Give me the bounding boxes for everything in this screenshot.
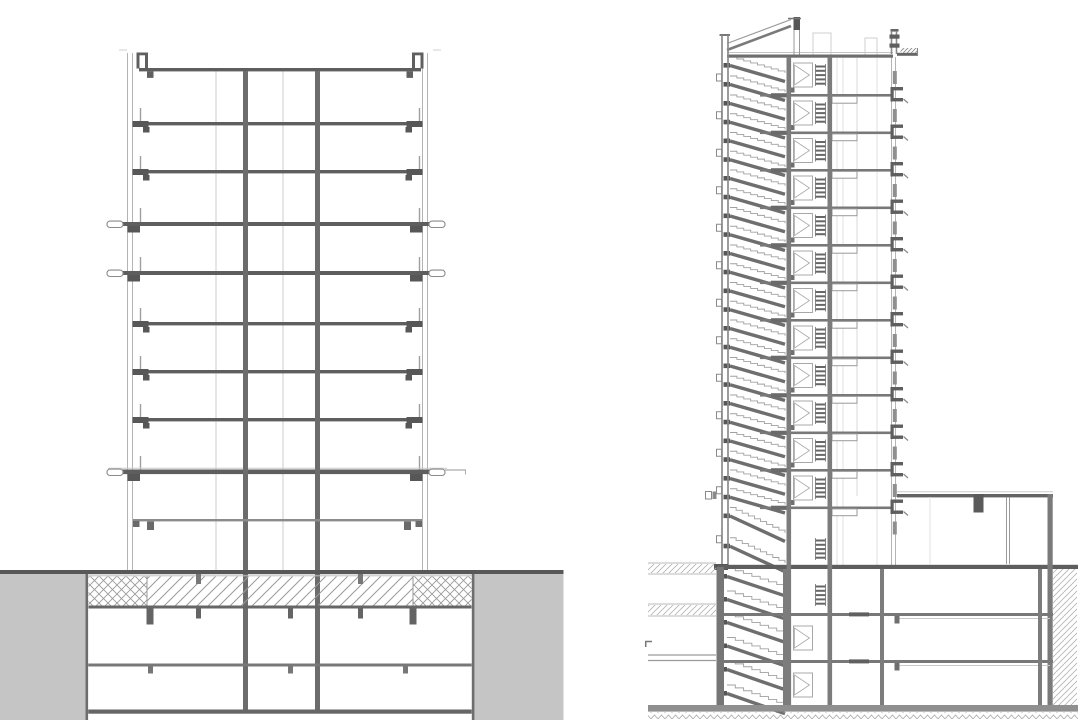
balcony-bracket: [891, 436, 904, 439]
architectural-sections-canvas: [0, 0, 1080, 720]
shaft-wall-dot: [791, 463, 795, 468]
ladder-rung: [816, 74, 826, 76]
slab-drip-tip: [429, 221, 445, 227]
bracket-tick: [904, 437, 909, 441]
ladder-rung: [816, 196, 826, 198]
corridor-beam: [832, 359, 857, 366]
parapet-bracket: [890, 44, 900, 48]
railing-dash: [893, 372, 897, 385]
ladder-rung: [816, 112, 826, 114]
parapet-bracket: [890, 35, 900, 39]
hatch-band-top: [89, 575, 472, 576]
basement-wall: [86, 574, 89, 720]
roof-slab: [139, 68, 421, 71]
ladder-rung: [816, 540, 826, 542]
slab-end-bracket: [407, 417, 423, 423]
bracket-tick: [904, 324, 909, 328]
railing-dash: [893, 109, 897, 122]
slab-step: [128, 474, 141, 481]
ladder-rung: [816, 179, 826, 181]
balcony-bracket: [891, 286, 904, 289]
ladder-rung: [816, 229, 826, 231]
slab-end-bracket: [143, 423, 150, 429]
podium-stub: [147, 522, 154, 531]
stair-landing-tick: [724, 214, 731, 219]
stair-landing-tick: [724, 176, 731, 181]
slab-end-bracket: [143, 175, 150, 181]
ladder-rung: [816, 370, 826, 372]
shaft-wall-dot: [791, 500, 795, 505]
stair-landing-tick: [724, 139, 731, 144]
ladder-rung: [816, 548, 826, 550]
ground-mass: [0, 574, 86, 720]
balcony-bracket: [891, 462, 904, 465]
wall-vent-tick: [717, 412, 722, 419]
wall-vent-tick: [717, 262, 722, 269]
slab-end-bracket: [406, 127, 413, 133]
floor-slab: [139, 322, 421, 325]
shaft-wall-dot: [791, 125, 795, 130]
slab-end-bracket: [406, 327, 413, 333]
bracket-tick: [904, 399, 909, 403]
slab-drip-tip: [429, 270, 445, 276]
slab-drip-tip: [107, 270, 123, 276]
wall-vent-tick: [717, 299, 722, 306]
roof-slab: [727, 55, 893, 58]
balcony-bracket: [891, 473, 904, 476]
slab-drip-tip: [429, 469, 445, 475]
corridor-beam: [832, 396, 857, 403]
stair-landing-tick: [724, 232, 731, 237]
ladder-rung: [816, 333, 826, 335]
stair-landing-tick: [724, 195, 731, 200]
elevator-shaft-wall: [787, 57, 792, 708]
balcony-bracket: [891, 511, 904, 514]
balcony-bracket: [891, 248, 904, 251]
stair-landing-tick: [724, 420, 731, 425]
ladder-rung: [816, 158, 826, 160]
ladder-rung: [816, 233, 826, 235]
annex-end-wall: [1048, 494, 1053, 708]
stair-landing-tick: [724, 401, 731, 406]
slab-end-bracket: [133, 121, 149, 127]
corridor-beam: [832, 284, 857, 291]
ladder-rung: [816, 291, 826, 293]
ladder-rung: [816, 300, 826, 302]
ladder-rung: [816, 121, 826, 123]
beam-segment: [849, 612, 869, 616]
stair-landing-tick: [724, 476, 731, 481]
ladder-rung: [816, 341, 826, 343]
column-stub: [196, 609, 201, 619]
slab-end-bracket: [143, 127, 150, 133]
balcony-bracket: [891, 98, 904, 101]
ladder-rung: [816, 108, 826, 110]
ladder-rung: [816, 308, 826, 310]
slab-step: [410, 226, 423, 233]
parapet-cap: [137, 53, 149, 56]
bracket-tick: [904, 512, 909, 516]
ladder-rung: [816, 271, 826, 273]
stair-landing-tick: [724, 345, 731, 350]
podium-slab: [133, 519, 422, 521]
column-stub: [358, 609, 363, 619]
column-stub: [196, 574, 201, 584]
slab-end-bracket: [143, 327, 150, 333]
ladder-rung: [816, 216, 826, 218]
wall-fixture: [706, 492, 712, 500]
floor-slab: [139, 418, 421, 421]
railing-dash: [893, 259, 897, 272]
column-stub: [895, 616, 900, 624]
corridor-beam: [832, 434, 857, 441]
ground-mass: [474, 574, 564, 720]
ladder-rung: [816, 66, 826, 68]
bracket-tick: [904, 362, 909, 366]
column-stub: [288, 667, 293, 674]
stair-landing-tick: [724, 326, 731, 331]
underground-wall: [717, 567, 725, 708]
column-stub: [148, 667, 153, 674]
column: [880, 569, 884, 708]
roof-canopy: [897, 53, 918, 56]
railing-dash: [893, 484, 897, 497]
ladder-rung: [816, 557, 826, 559]
parapet-stub: [407, 71, 414, 78]
shaft-wall-dot: [791, 275, 795, 280]
stair-core-longitudinal-section: [645, 17, 1078, 719]
stair-landing-tick: [724, 364, 731, 369]
ladder-rung: [816, 412, 826, 414]
ladder-rung: [816, 225, 826, 227]
ladder-rung: [816, 375, 826, 377]
stair-landing-tick: [724, 307, 731, 312]
foundation-slab: [89, 606, 472, 609]
balcony-bracket: [891, 200, 904, 203]
foundation-hatch-cross: [413, 577, 472, 606]
slab-step: [128, 226, 141, 233]
slab-drip-tip: [107, 221, 123, 227]
shaft-wall-dot: [791, 388, 795, 393]
podium-stub: [404, 522, 411, 531]
ladder-rung: [816, 254, 826, 256]
balcony-bracket: [891, 125, 904, 128]
shaft-wall-dot: [791, 238, 795, 243]
foundation-hatch-cross: [89, 577, 148, 606]
ladder-rung: [816, 220, 826, 222]
rooftop-equipment-outline: [813, 33, 831, 55]
column-stub: [147, 609, 154, 625]
stair-landing-tick: [724, 63, 731, 68]
ladder-rung: [816, 346, 826, 348]
slab-end-bracket: [407, 121, 423, 127]
annex-roof-step: [974, 494, 984, 513]
ladder-rung: [816, 258, 826, 260]
bracket-tick: [904, 474, 909, 478]
stair-landing-tick: [724, 251, 731, 256]
soil-hatch: [648, 605, 716, 615]
bracket-tick: [904, 174, 909, 178]
corridor-beam: [832, 209, 857, 216]
railing-dash: [893, 184, 897, 197]
ladder-rung: [816, 145, 826, 147]
stair-landing-tick: [724, 514, 731, 519]
slab-step: [128, 275, 141, 282]
wall-vent-tick: [717, 74, 722, 81]
railing-dash: [893, 297, 897, 310]
column-stub: [288, 609, 293, 619]
railing-dash: [893, 71, 897, 84]
slab-step: [410, 275, 423, 282]
balcony-bracket: [891, 500, 904, 503]
subgrade-zigzag-line: [648, 713, 1078, 720]
slab-end-bracket: [133, 321, 149, 327]
corridor-beam: [832, 321, 857, 328]
slab-end-bracket: [133, 417, 149, 423]
parapet-cap: [412, 53, 424, 56]
ladder-rung: [816, 104, 826, 106]
balcony-bracket: [891, 237, 904, 240]
floor-slab: [139, 170, 421, 173]
stair-bulkhead-roof-line: [727, 20, 791, 44]
ladder-rung: [816, 603, 826, 605]
wall-vent-tick: [717, 187, 722, 194]
balcony-bracket: [891, 323, 904, 326]
railing-dash: [893, 522, 897, 535]
ladder-rung: [816, 379, 826, 381]
column-stub: [403, 667, 408, 674]
ground-slab: [0, 570, 564, 574]
slab-end-bracket: [406, 423, 413, 429]
ladder-rung: [816, 441, 826, 443]
basement-wall: [472, 574, 475, 720]
wall-fixture: [713, 492, 717, 500]
corridor-beam: [832, 171, 857, 178]
ladder-rung: [816, 496, 826, 498]
wall-vent-tick: [717, 374, 722, 381]
podium-stub: [416, 521, 423, 527]
ladder-rung: [816, 491, 826, 493]
stair-landing-tick: [724, 544, 731, 549]
slab-step: [410, 474, 423, 481]
slab-end-bracket: [407, 169, 423, 175]
shaft-wall-dot: [791, 350, 795, 355]
elevator-shaft-wall: [828, 57, 833, 708]
slab-end-bracket: [133, 369, 149, 375]
ladder-rung: [816, 116, 826, 118]
ladder-rung: [816, 337, 826, 339]
shaft-wall-dot: [791, 88, 795, 93]
ladder-rung: [816, 487, 826, 489]
column: [243, 71, 248, 710]
balcony-bracket: [891, 387, 904, 390]
ladder-rung: [816, 404, 826, 406]
balcony-bracket: [891, 275, 904, 278]
wall-vent-tick: [717, 224, 722, 231]
drawing-sheet: [0, 0, 1080, 720]
ladder-rung: [816, 329, 826, 331]
wall-vent-tick: [717, 449, 722, 456]
column-stub: [358, 574, 363, 584]
ladder-rung: [816, 183, 826, 185]
balcony-bracket: [891, 136, 904, 139]
stair-bulkhead-roof: [727, 26, 791, 50]
ladder-rung: [816, 450, 826, 452]
basement-floor-slab: [88, 664, 472, 667]
bracket-tick: [904, 99, 909, 103]
balcony-bracket: [891, 173, 904, 176]
ladder-rung: [816, 187, 826, 189]
corridor-beam: [832, 96, 857, 103]
stair-landing-tick: [724, 101, 731, 106]
column: [783, 569, 787, 708]
ladder-rung: [816, 366, 826, 368]
slab-end-bracket: [143, 375, 150, 381]
stair-landing-tick: [724, 157, 731, 162]
cantilever-slab: [120, 271, 436, 275]
wall-vent-tick: [717, 487, 722, 494]
floor-slab: [139, 122, 421, 125]
ground-slab: [718, 565, 1078, 569]
ladder-rung: [816, 154, 826, 156]
balcony-bracket: [891, 211, 904, 214]
ladder-rung: [816, 445, 826, 447]
corridor-beam: [832, 509, 857, 516]
floor-slab: [139, 370, 421, 373]
building-cross-section: [0, 50, 564, 720]
cantilever-slab: [120, 222, 436, 226]
corridor-beam: [832, 471, 857, 478]
bracket-tick: [904, 212, 909, 216]
balcony-bracket: [891, 398, 904, 401]
bracket-tick: [904, 287, 909, 291]
corridor-beam: [832, 134, 857, 141]
ladder-rung: [816, 304, 826, 306]
stair-landing-tick: [724, 289, 731, 294]
parapet-stub: [147, 71, 154, 78]
railing-dash: [893, 409, 897, 422]
ladder-rung: [816, 150, 826, 152]
ladder-rung: [816, 295, 826, 297]
ladder-rung: [816, 590, 826, 592]
podium-stub: [133, 521, 140, 527]
railing-dash: [893, 334, 897, 347]
stair-landing-tick: [724, 439, 731, 444]
soil-hatch: [648, 564, 716, 573]
ladder-rung: [816, 598, 826, 600]
ladder-rung: [816, 552, 826, 554]
basement-slab: [724, 660, 1053, 663]
railing-dash: [893, 447, 897, 460]
ladder-rung: [816, 266, 826, 268]
balcony-bracket: [891, 162, 904, 165]
foundation-base-slab: [88, 710, 472, 714]
ladder-rung: [816, 78, 826, 80]
ladder-rung: [816, 483, 826, 485]
ladder-rung: [816, 191, 826, 193]
ladder-rung: [816, 454, 826, 456]
ladder-rung: [816, 141, 826, 143]
slab-drip-tip: [107, 469, 123, 475]
stair-landing-tick: [724, 270, 731, 275]
wall-vent-tick: [717, 149, 722, 156]
ladder-rung: [816, 421, 826, 423]
stair-landing-tick: [724, 82, 731, 87]
shaft-wall-dot: [791, 200, 795, 205]
bracket-tick: [904, 249, 909, 253]
ladder-rung: [816, 262, 826, 264]
stair-landing-tick: [724, 495, 731, 500]
ladder-rung: [816, 383, 826, 385]
ladder-rung: [816, 544, 826, 546]
foundation-base-slab: [648, 705, 1078, 712]
ladder-rung: [816, 83, 826, 85]
ladder-rung: [816, 594, 826, 596]
wall-vent-tick: [717, 112, 722, 119]
canopy-hatch-block: [901, 48, 918, 53]
column-stub: [895, 663, 900, 671]
stair-landing-tick: [724, 382, 731, 387]
stair-landing-tick: [724, 457, 731, 462]
ladder-rung: [816, 586, 826, 588]
wall-vent-tick: [717, 536, 722, 543]
beam-segment: [849, 659, 869, 663]
balcony-bracket: [891, 425, 904, 428]
shaft-wall-dot: [791, 163, 795, 168]
railing-dash: [893, 222, 897, 235]
balcony-bracket: [891, 87, 904, 90]
balcony-bracket: [891, 361, 904, 364]
railing-dash: [893, 147, 897, 160]
ladder-rung: [816, 416, 826, 418]
bracket-tick: [904, 137, 909, 141]
shaft-wall-dot: [791, 425, 795, 430]
column: [1038, 569, 1042, 708]
soil-hatch: [1053, 569, 1077, 705]
basement-slab: [724, 613, 1053, 616]
shaft-wall-dot: [791, 313, 795, 318]
column: [315, 71, 320, 710]
ladder-rung: [816, 458, 826, 460]
balcony-bracket: [891, 350, 904, 353]
corridor-beam: [832, 246, 857, 253]
ladder-rung: [816, 479, 826, 481]
stair-landing-tick: [724, 120, 731, 125]
slab-end-bracket: [407, 369, 423, 375]
canopy-slab: [118, 470, 438, 475]
column-stub: [410, 609, 417, 625]
ladder-rung: [816, 70, 826, 72]
balcony-bracket: [891, 312, 904, 315]
slab-end-bracket: [407, 321, 423, 327]
wall-vent-tick: [717, 337, 722, 344]
slab-end-bracket: [133, 169, 149, 175]
slab-end-bracket: [406, 375, 413, 381]
ladder-rung: [816, 408, 826, 410]
slab-end-bracket: [406, 175, 413, 181]
foundation-hatch-diagonal: [147, 577, 413, 606]
